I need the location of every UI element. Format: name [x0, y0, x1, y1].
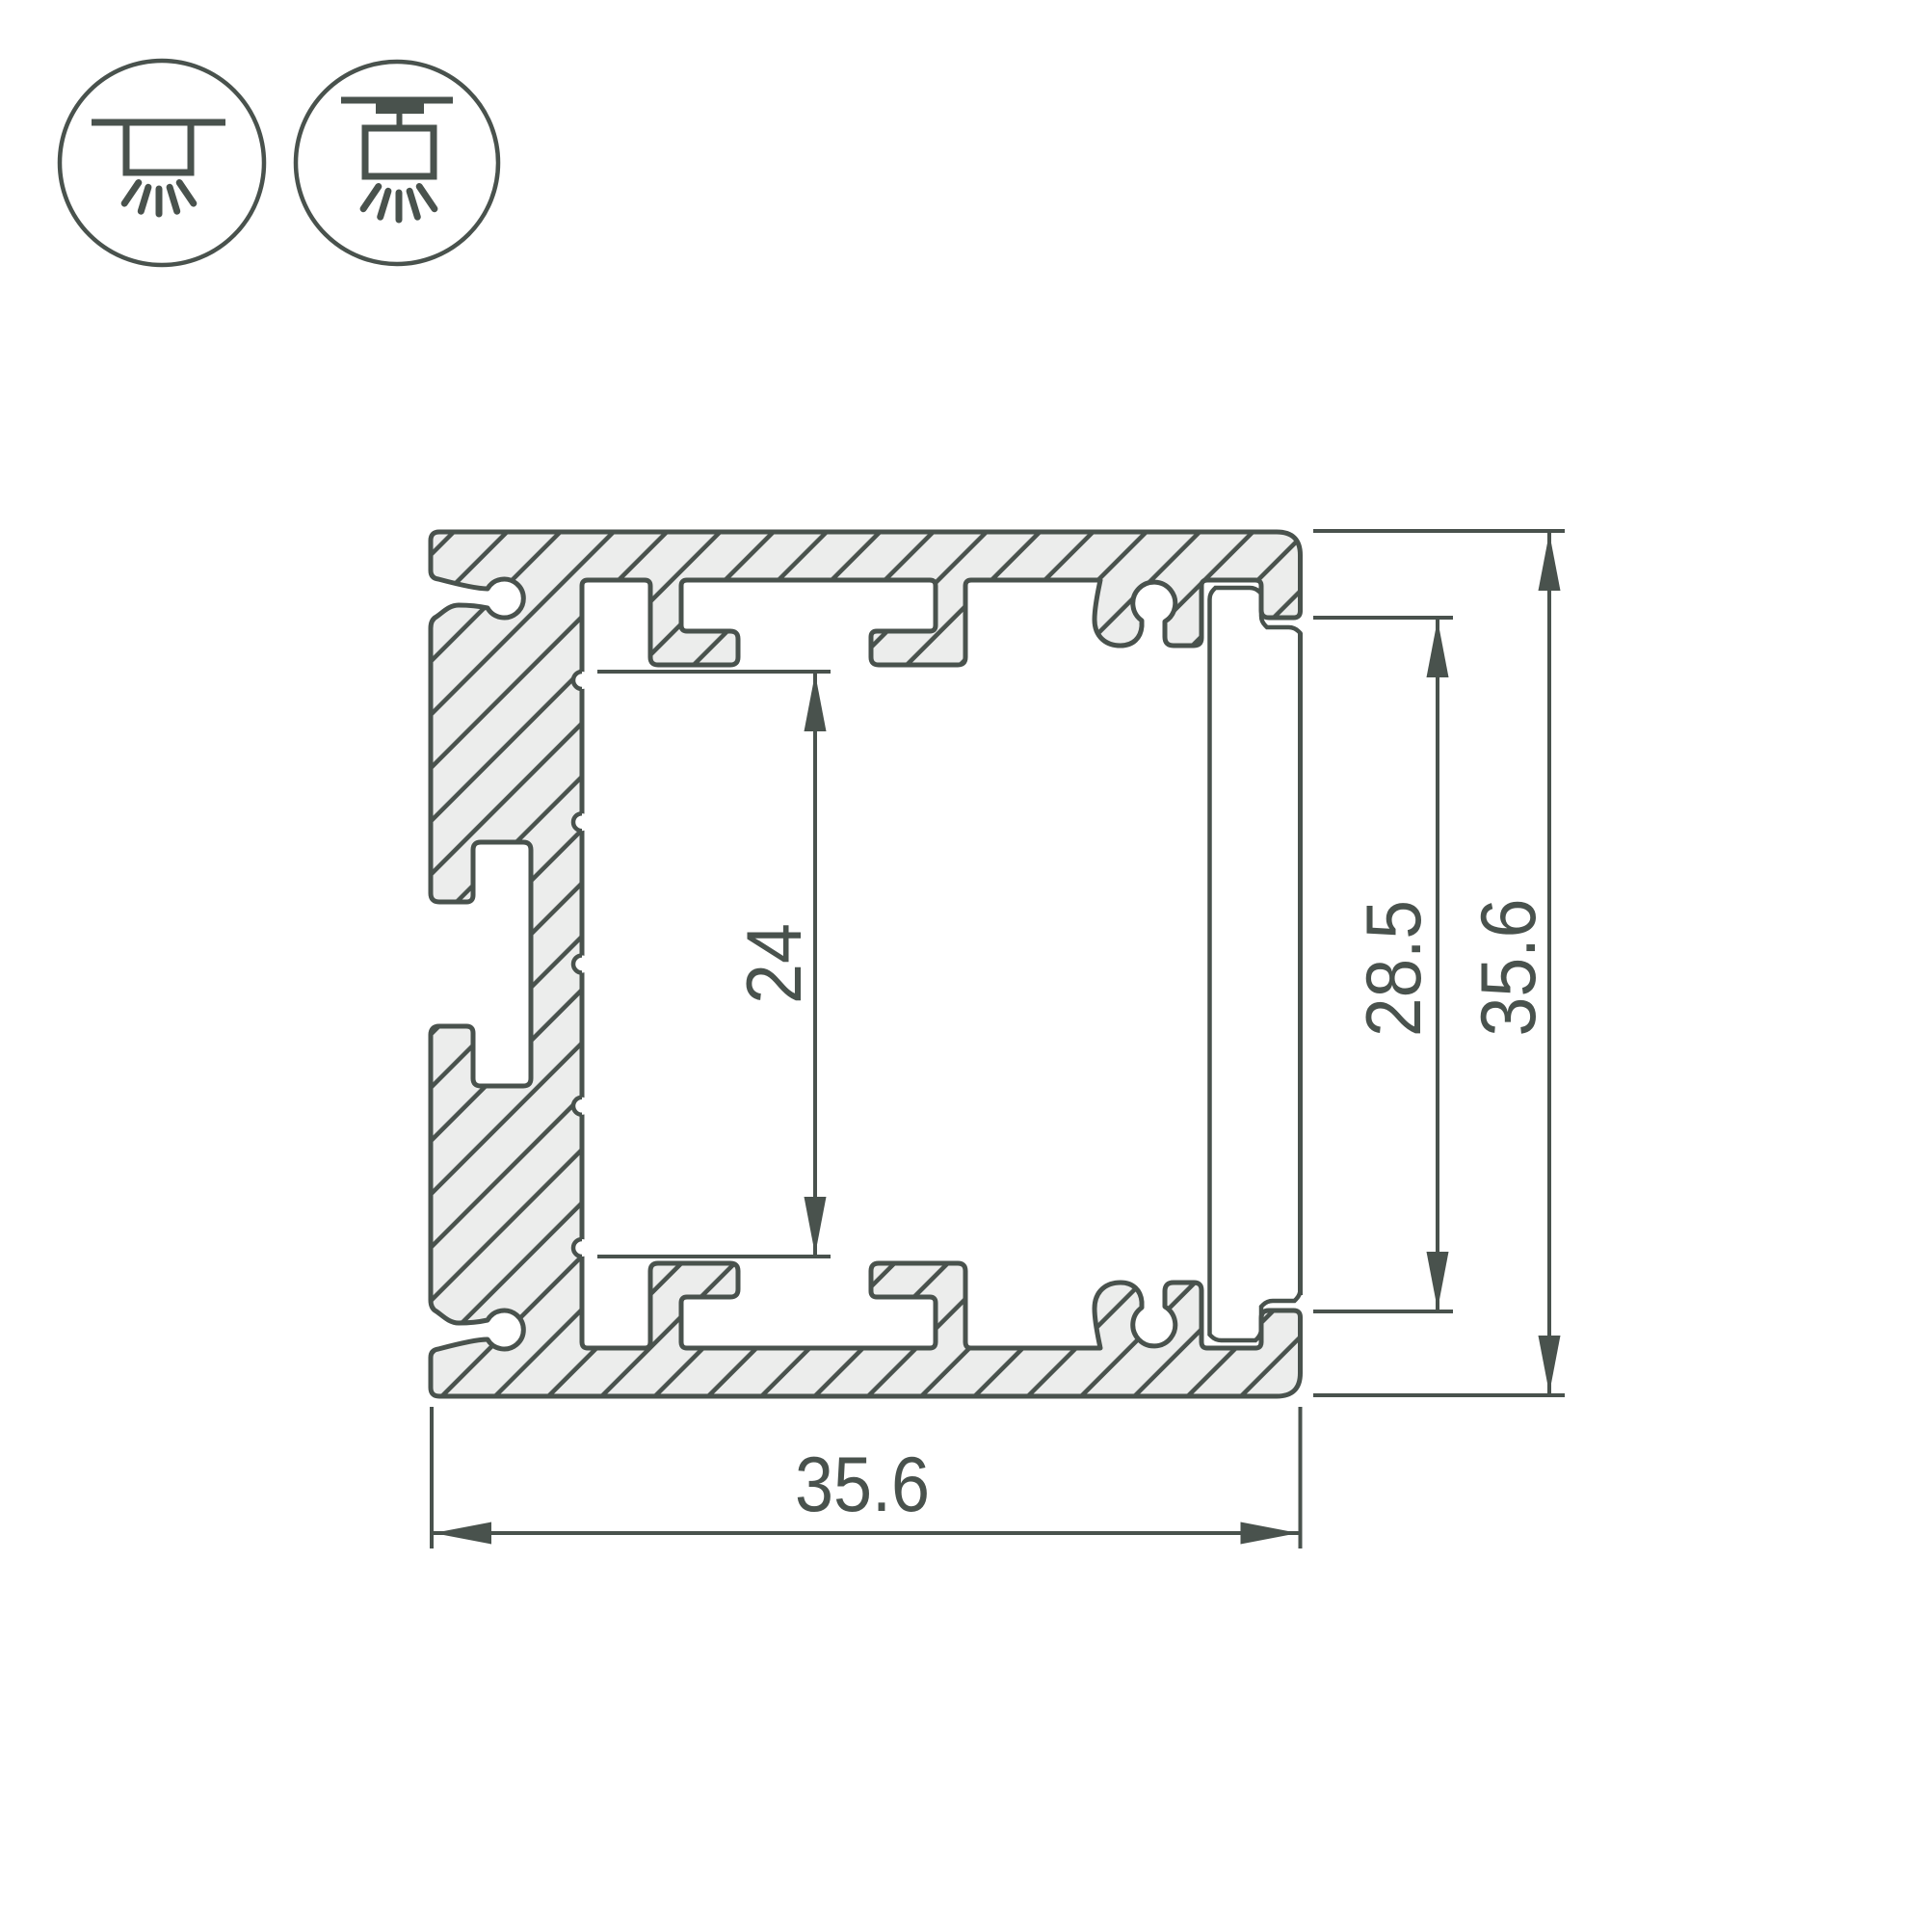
svg-text:28.5: 28.5	[1351, 900, 1438, 1037]
svg-text:35.6: 35.6	[1465, 899, 1552, 1037]
svg-text:35.6: 35.6	[795, 1442, 930, 1528]
svg-text:24: 24	[731, 923, 818, 1004]
